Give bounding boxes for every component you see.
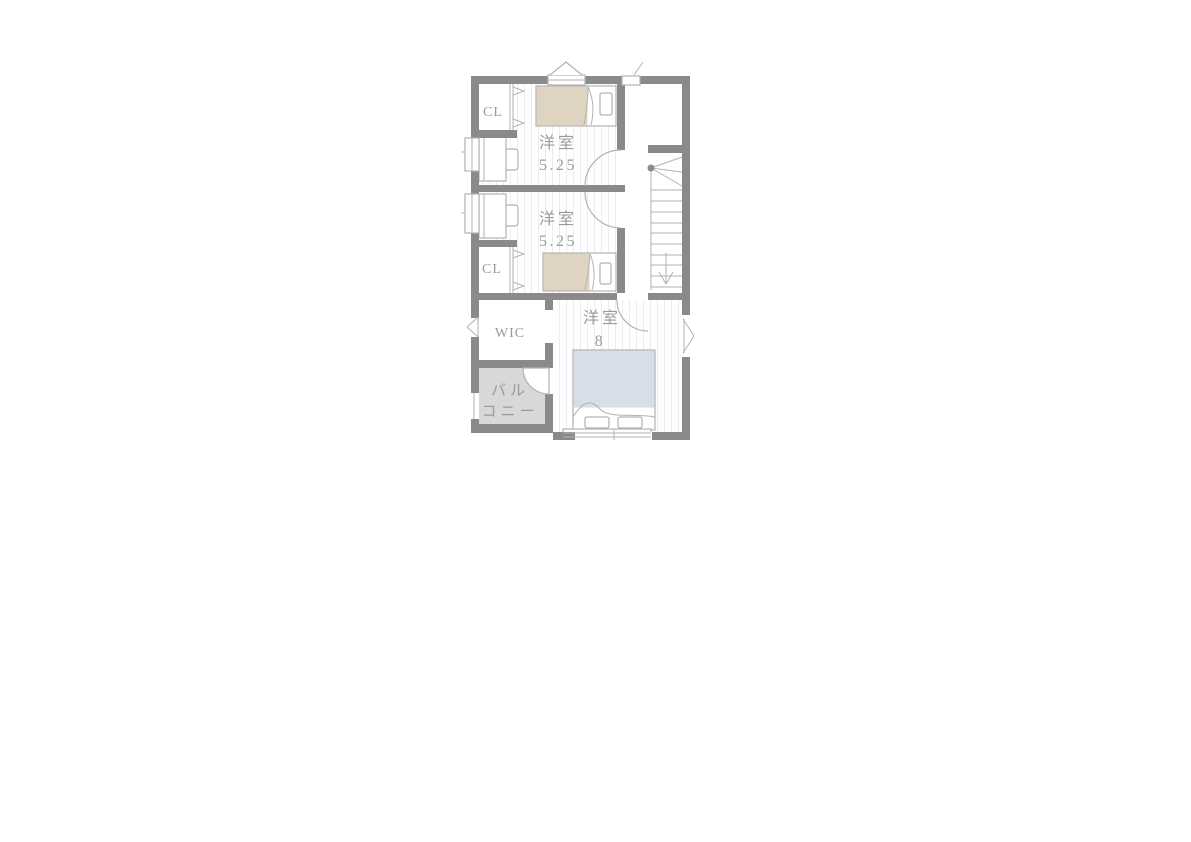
bedroom2-name: 洋室 <box>539 210 577 228</box>
bedroom1-size: 5.25 <box>539 157 577 174</box>
closet2-label: CL <box>482 262 502 277</box>
window-icon <box>467 317 479 337</box>
single-bed-icon <box>543 253 616 291</box>
bedroom2-size: 5.25 <box>539 233 577 250</box>
balcony-label-line1: バル <box>491 383 529 399</box>
window-icon <box>622 62 643 85</box>
wic-label: WIC <box>495 326 525 341</box>
single-bed-icon <box>536 86 616 126</box>
master-bedroom-size: 8 <box>595 333 606 350</box>
closet1-label: CL <box>483 105 503 120</box>
master-bedroom-name: 洋室 <box>583 309 621 327</box>
window-icon <box>548 62 585 85</box>
hall-floor <box>625 84 682 293</box>
balcony-label-line2: コニー <box>481 404 538 420</box>
floor-plan-page: CL 洋室 5.25 洋室 5.25 CL WIC 洋室 8 バル コニー <box>0 0 1191 842</box>
floor-plan-canvas: CL 洋室 5.25 洋室 5.25 CL WIC 洋室 8 バル コニー <box>0 0 1191 842</box>
window-icon <box>461 194 479 233</box>
double-bed-icon <box>563 350 655 437</box>
window-icon <box>461 138 479 171</box>
window-icon <box>471 393 479 419</box>
window-icon <box>682 315 694 357</box>
bedroom1-name: 洋室 <box>539 134 577 152</box>
stair-newel-post <box>648 165 655 172</box>
